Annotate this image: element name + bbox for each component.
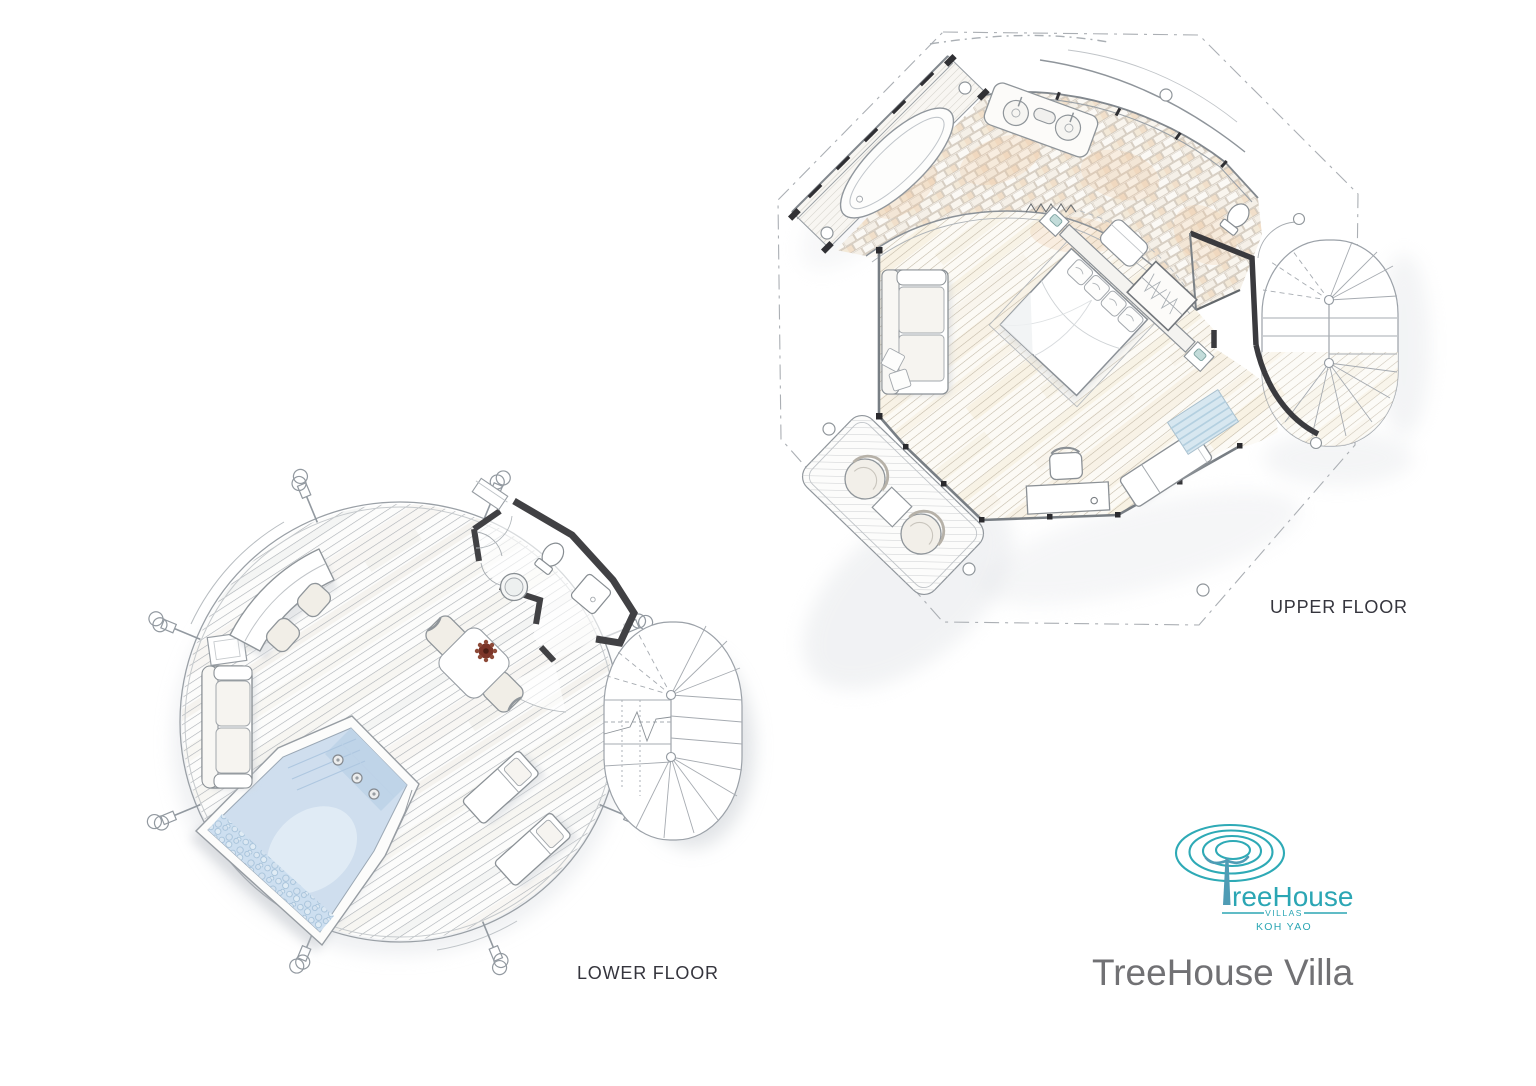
svg-text:KOH YAO: KOH YAO <box>1256 921 1312 933</box>
svg-text:UPPER FLOOR: UPPER FLOOR <box>1270 597 1408 617</box>
svg-text:LOWER FLOOR: LOWER FLOOR <box>577 963 719 983</box>
svg-text:VILLAS: VILLAS <box>1265 908 1303 918</box>
svg-text:TreeHouse Villa: TreeHouse Villa <box>1092 952 1354 993</box>
